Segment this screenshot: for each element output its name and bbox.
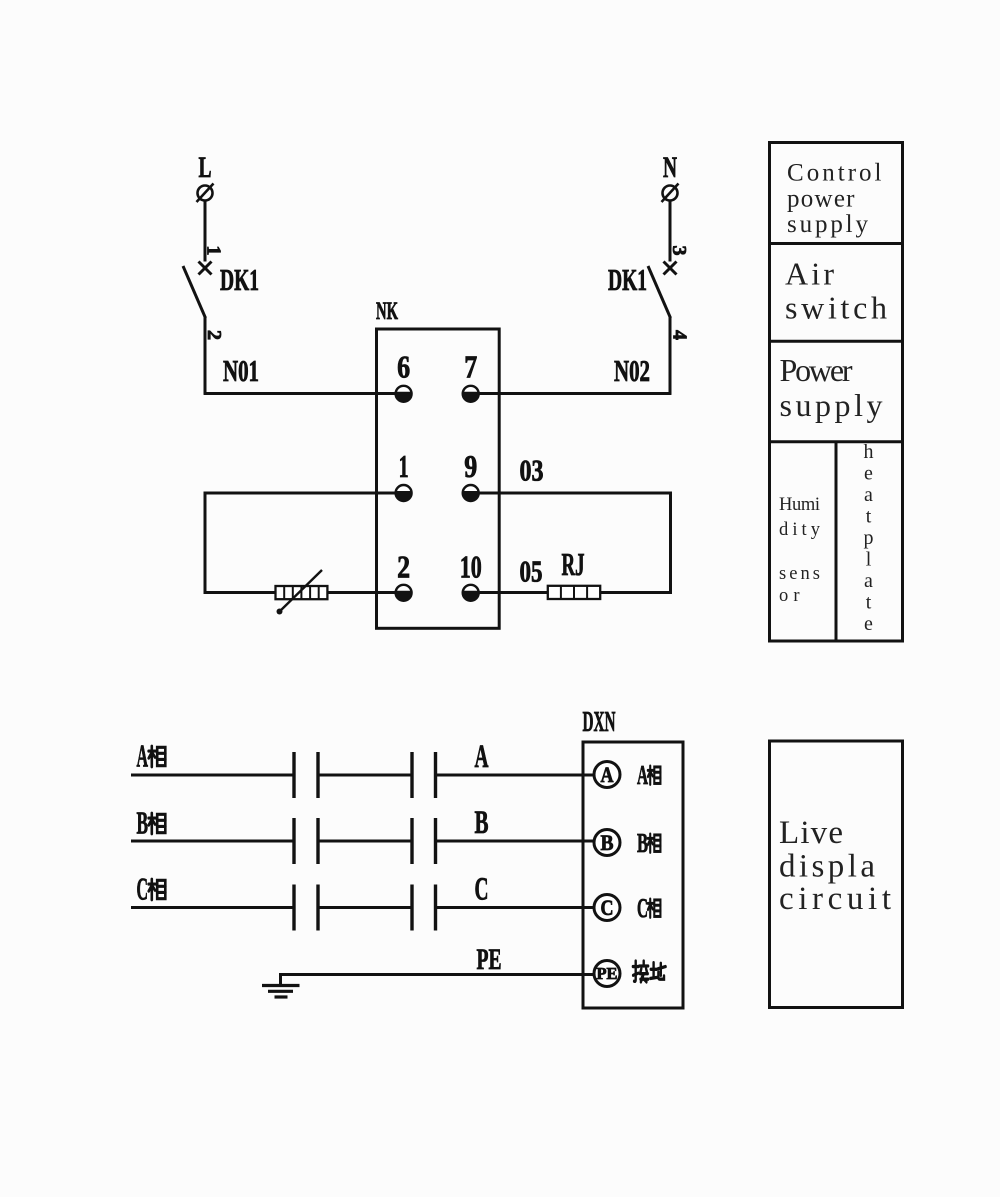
svg-text:B: B [637,828,648,858]
svg-text:B: B [475,805,489,841]
svg-text:a: a [864,570,873,592]
svg-text:p: p [864,527,874,549]
svg-text:l: l [866,549,872,571]
svg-text:switch: switch [785,290,887,326]
svg-text:7: 7 [464,349,477,385]
svg-text:h: h [864,441,874,463]
svg-text:NK: NK [376,298,398,325]
svg-text:t: t [866,506,872,528]
svg-text:B: B [137,805,149,841]
svg-text:N: N [663,151,677,184]
svg-text:6: 6 [397,349,410,385]
svg-text:2: 2 [397,549,410,585]
svg-text:PE: PE [597,964,618,983]
svg-text:3: 3 [668,246,690,256]
svg-text:DK1: DK1 [220,262,259,297]
svg-text:A: A [637,760,648,790]
svg-text:C: C [475,872,489,908]
svg-text:DXN: DXN [583,706,616,738]
svg-text:9: 9 [464,448,477,484]
svg-text:B: B [601,830,614,855]
svg-text:displa: displa [779,849,875,885]
svg-text:C: C [601,895,614,920]
svg-text:t: t [866,592,872,614]
svg-text:1: 1 [203,246,225,256]
svg-text:Power: Power [780,352,853,388]
svg-text:C: C [137,871,149,907]
svg-text:1: 1 [399,448,409,484]
svg-text:PE: PE [477,943,502,976]
svg-text:4: 4 [669,330,691,340]
svg-text:e: e [864,613,873,635]
svg-text:A: A [601,762,614,787]
svg-text:N01: N01 [223,353,259,388]
svg-text:Humi: Humi [779,495,820,515]
svg-text:RJ: RJ [562,546,585,582]
svg-text:A: A [137,738,149,774]
svg-text:Live: Live [779,815,843,851]
svg-text:L: L [199,151,212,184]
svg-text:Control: Control [787,160,882,187]
svg-text:2: 2 [203,330,225,340]
svg-text:DK1: DK1 [608,262,647,297]
svg-text:A: A [475,739,489,775]
svg-text:05: 05 [520,554,543,589]
svg-text:10: 10 [460,549,482,585]
svg-text:supply: supply [780,387,883,423]
svg-text:N02: N02 [614,353,650,388]
svg-text:a: a [864,484,873,506]
svg-text:03: 03 [520,453,544,488]
svg-text:e: e [864,463,873,485]
svg-text:C: C [637,893,648,923]
